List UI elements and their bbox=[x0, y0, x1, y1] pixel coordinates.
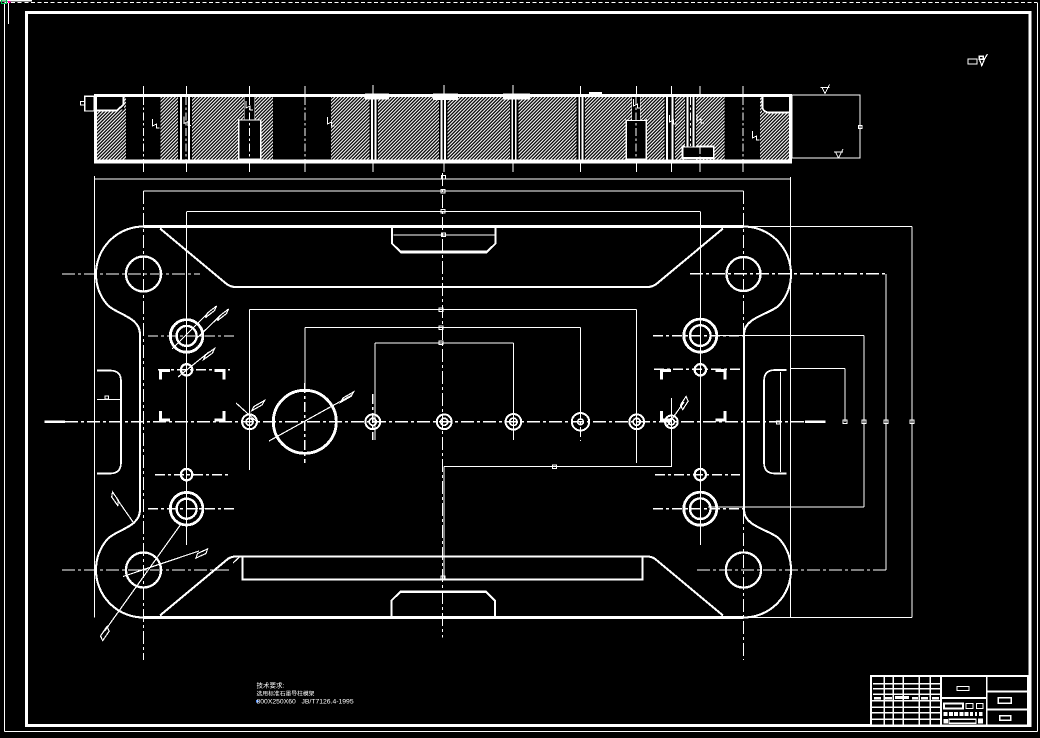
svg-text:技术要求:: 技术要求: bbox=[257, 681, 285, 690]
svg-text:选用标准石墨导柱模架: 选用标准石墨导柱模架 bbox=[257, 690, 315, 698]
svg-text:800X250X60 JB/T7126.4-1995: 800X250X60 JB/T7126.4-1995 bbox=[257, 699, 354, 706]
